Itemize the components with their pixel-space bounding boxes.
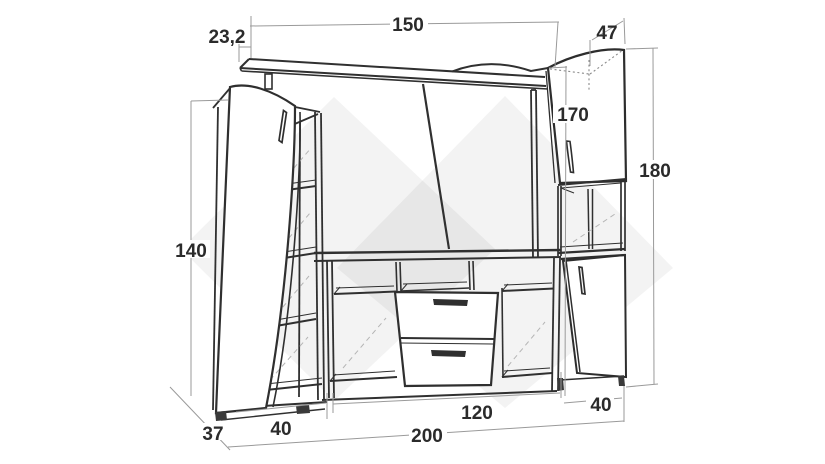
svg-text:170: 170 bbox=[557, 105, 589, 126]
svg-text:140: 140 bbox=[175, 241, 207, 262]
svg-text:120: 120 bbox=[461, 403, 493, 424]
svg-text:150: 150 bbox=[392, 15, 424, 36]
svg-text:40: 40 bbox=[270, 419, 291, 440]
svg-text:200: 200 bbox=[411, 426, 443, 447]
svg-text:23,2: 23,2 bbox=[209, 27, 246, 48]
svg-text:180: 180 bbox=[639, 161, 671, 182]
svg-text:40: 40 bbox=[590, 395, 611, 416]
svg-text:37: 37 bbox=[202, 424, 223, 445]
svg-text:47: 47 bbox=[596, 23, 617, 44]
